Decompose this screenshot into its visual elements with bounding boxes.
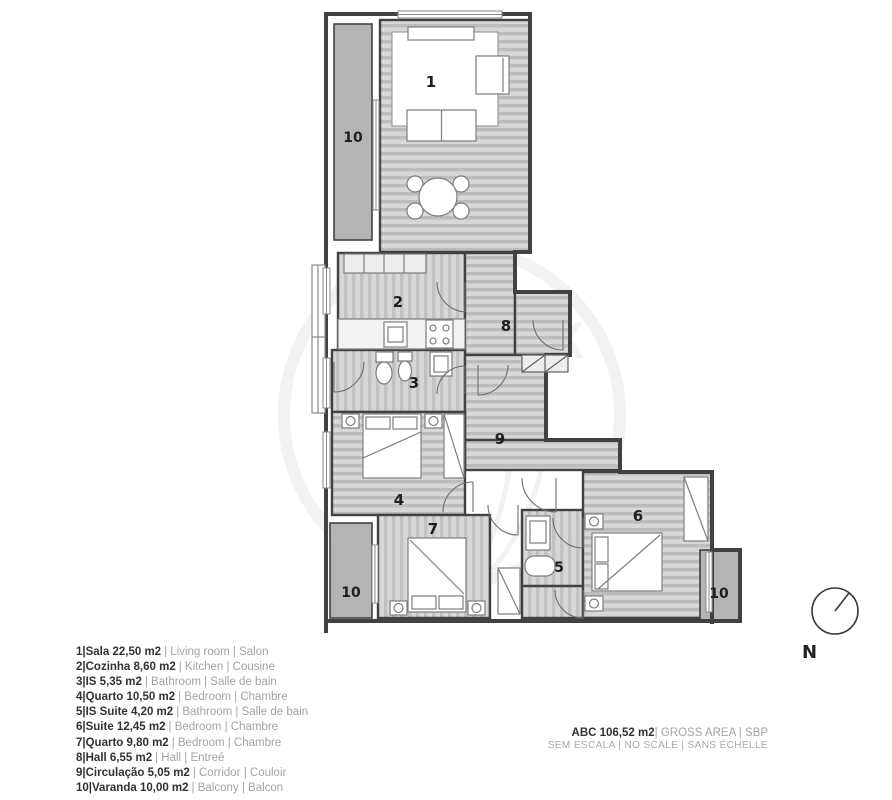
window-icon <box>323 358 330 408</box>
room-label-10b: 10 <box>341 585 361 601</box>
legend-item: 3|IS 5,35 m2| Bathroom | Salle de bain <box>76 675 308 690</box>
room-label-6: 6 <box>633 507 643 525</box>
nightstand-icon <box>425 414 442 428</box>
window-icon <box>323 432 330 488</box>
hall-closet <box>522 355 568 372</box>
balcony-bottom-left <box>330 523 372 618</box>
stove-icon <box>426 320 453 348</box>
armchair-icon <box>476 56 509 94</box>
room-label-2: 2 <box>393 293 403 311</box>
sliding-door-icon <box>372 545 378 603</box>
nightstand-icon <box>342 414 359 428</box>
washbasin-icon <box>430 352 452 376</box>
nightstand-icon <box>585 596 603 611</box>
floor-plan-page: RE M AX ® <box>0 0 892 800</box>
compass-needle-icon <box>835 593 849 611</box>
room-label-4: 4 <box>394 491 404 509</box>
room-label-3: 3 <box>409 374 419 392</box>
bathtub-icon <box>525 556 555 576</box>
legend-item: 9|Circulação 5,05 m2| Corridor | Couloir <box>76 766 308 781</box>
toilet-icon <box>376 352 393 384</box>
corridor-horizontal <box>465 440 620 470</box>
bed-icon <box>408 538 466 612</box>
area-note: ABC 106,52 m2| GROSS AREA | SBP SEM ESCA… <box>540 727 768 751</box>
room-label-10c: 10 <box>709 586 729 602</box>
legend: 1|Sala 22,50 m2| Living room | Salon 2|C… <box>76 645 308 796</box>
sliding-door-icon <box>373 100 379 210</box>
sliding-door-icon <box>706 552 712 612</box>
room-hall-b <box>515 292 570 355</box>
legend-item: 8|Hall 6,55 m2| Hall | Entreé <box>76 751 308 766</box>
legend-item: 2|Cozinha 8,60 m2| Kitchen | Cousine <box>76 660 308 675</box>
loveseat-icon <box>407 110 476 141</box>
legend-item: 10|Varanda 10,00 m2| Balcony | Balcon <box>76 781 308 796</box>
room-label-5: 5 <box>554 560 564 576</box>
sink-icon <box>384 322 407 347</box>
window-icon <box>323 268 330 314</box>
bed-icon <box>363 414 421 478</box>
scale-note: SEM ESCALA | NO SCALE | SANS ÉCHELLE <box>540 740 768 751</box>
gross-area-line: ABC 106,52 m2| GROSS AREA | SBP <box>540 727 768 739</box>
wardrobe-icon <box>498 568 520 614</box>
room-label-1: 1 <box>426 73 436 91</box>
room-label-7: 7 <box>428 520 438 538</box>
legend-item: 7|Quarto 9,80 m2| Bedroom | Chambre <box>76 736 308 751</box>
washbasin-icon <box>526 516 550 550</box>
north-label: N <box>802 642 817 663</box>
legend-item: 4|Quarto 10,50 m2| Bedroom | Chambre <box>76 690 308 705</box>
bed-icon <box>592 533 662 591</box>
room-hall-a <box>465 253 515 355</box>
room-label-10a: 10 <box>343 130 363 146</box>
legend-item: 6|Suite 12,45 m2| Bedroom | Chambre <box>76 720 308 735</box>
bedroom7-furniture <box>390 538 520 615</box>
wardrobe-icon <box>684 477 708 541</box>
cabinets <box>344 254 426 273</box>
room-label-8: 8 <box>501 317 511 335</box>
nightstand-icon <box>585 514 603 529</box>
legend-item: 5|IS Suite 4,20 m2| Bathroom | Salle de … <box>76 705 308 720</box>
room-label-9: 9 <box>495 430 505 448</box>
sofa-icon <box>408 27 474 40</box>
legend-item: 1|Sala 22,50 m2| Living room | Salon <box>76 645 308 660</box>
wardrobe-icon <box>444 414 464 478</box>
north-compass: N <box>790 575 880 670</box>
nightstand-icon <box>468 601 485 615</box>
nightstand-icon <box>390 601 407 615</box>
window-icon <box>398 11 502 18</box>
